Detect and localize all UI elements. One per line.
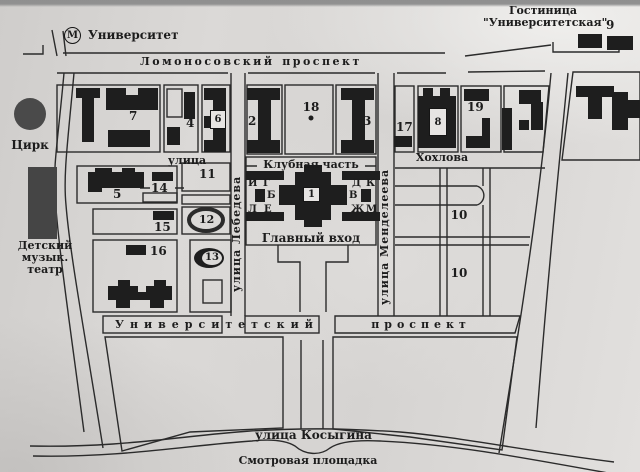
building-15	[153, 211, 174, 220]
building-1-number: 1	[303, 187, 320, 202]
n8-text: 8	[435, 117, 442, 128]
building-18-number: 18	[300, 101, 322, 113]
entrance-plaza	[278, 245, 348, 312]
building-top-right	[576, 86, 640, 130]
building-19	[464, 89, 490, 148]
building-13-number: 13	[205, 253, 219, 263]
theater-label-line3: театр	[12, 264, 78, 275]
corner-road	[23, 45, 43, 54]
building-7	[106, 88, 158, 110]
building-7-annex	[108, 130, 150, 147]
building-4-outline	[167, 89, 182, 117]
building-4a	[184, 92, 195, 119]
street-universitetsky-word1: Университетский	[104, 319, 330, 330]
street-kosygina-label: улица Косыгина	[255, 429, 371, 441]
circus-building	[14, 98, 46, 130]
building-4b	[167, 127, 180, 145]
building-3-number: 3	[363, 115, 371, 127]
building-15-number: 15	[154, 221, 171, 233]
building-16-number: 16	[150, 245, 167, 257]
street-lebedeva-label: улица Лебедева	[231, 155, 245, 313]
metro-icon: М	[64, 27, 81, 44]
building-19-number: 19	[467, 101, 484, 113]
n1-text: 1	[308, 189, 315, 200]
university-campus-map: М Университет Гостиница "Университетская…	[0, 0, 640, 472]
hotel-building-a	[578, 34, 602, 48]
street-universitetsky-word2: проспект	[366, 319, 476, 330]
grid-horizontal-street	[395, 237, 530, 245]
building-2-number: 2	[248, 115, 256, 127]
building-12-number: 12	[199, 214, 214, 225]
wing-letter-e: Е	[264, 205, 272, 215]
hotel-access-road	[465, 45, 551, 56]
metro-station-label: Университет	[88, 29, 179, 41]
wing-letter-m: М	[366, 205, 377, 215]
building-17-number: 17	[396, 121, 413, 133]
wing-letter-zh: Ж	[351, 205, 364, 215]
hotel-label-line1: Гостиница	[488, 5, 598, 16]
strip-building-east	[182, 195, 230, 204]
n6-text: 6	[215, 114, 222, 125]
building-7-number: 7	[129, 110, 137, 122]
street-ulitsa-label: улица	[165, 155, 209, 166]
smotrovaya-label: Смотровая площадка	[236, 455, 380, 466]
wing-letter-i: И	[248, 179, 257, 189]
central-alley	[301, 340, 323, 429]
theater-label-line2: музык.	[12, 252, 78, 263]
metro-symbol: М	[67, 30, 78, 41]
club-part-label: Клубная часть	[258, 159, 364, 170]
hotel-label-line2: "Университетская"	[483, 17, 607, 28]
building-14-number: 14	[151, 182, 168, 194]
building-t-shape	[76, 88, 100, 142]
main-entrance-label: Главный вход	[255, 232, 367, 244]
street-lomonosovsky-word1: Ломоносовский	[140, 56, 270, 67]
building-5-number: 5	[113, 188, 121, 200]
hotel-building-b	[607, 36, 633, 50]
building-8-number: 8	[429, 108, 447, 136]
wing-letter-k: К	[366, 179, 375, 189]
street-mendeleeva-label: улица Менделеева	[379, 158, 393, 316]
building-13-annex	[203, 280, 222, 303]
building-11-number: 11	[199, 168, 216, 180]
building-14	[152, 172, 173, 181]
building-18-dot	[309, 116, 314, 121]
theater-label-line1: Детский	[12, 240, 78, 251]
wing-letter-g: Г	[263, 179, 270, 189]
hotel-number: 9	[606, 19, 614, 31]
wing-letter-l: Л	[248, 205, 257, 215]
lomonosovsky-bottom-line	[57, 71, 545, 73]
area-10a-number: 10	[448, 209, 470, 221]
building-4-number: 4	[186, 117, 194, 129]
building-17	[394, 136, 412, 147]
wing-letter-d: Д	[352, 179, 361, 189]
building-16-marker	[126, 245, 146, 255]
building-6-number: 6	[210, 110, 226, 129]
buildings-layer	[14, 34, 640, 308]
street-khokhlova-label: Хохлова	[412, 152, 472, 163]
area-10b-number: 10	[448, 267, 470, 279]
wing-letter-v: В	[349, 191, 357, 201]
circus-label: Цирк	[10, 139, 50, 151]
theater-building	[28, 167, 57, 239]
street-lomonosovsky-word2: проспект	[282, 56, 362, 67]
wing-letter-b: Б	[267, 191, 276, 201]
building-castle	[108, 280, 172, 308]
building-s	[502, 90, 543, 150]
